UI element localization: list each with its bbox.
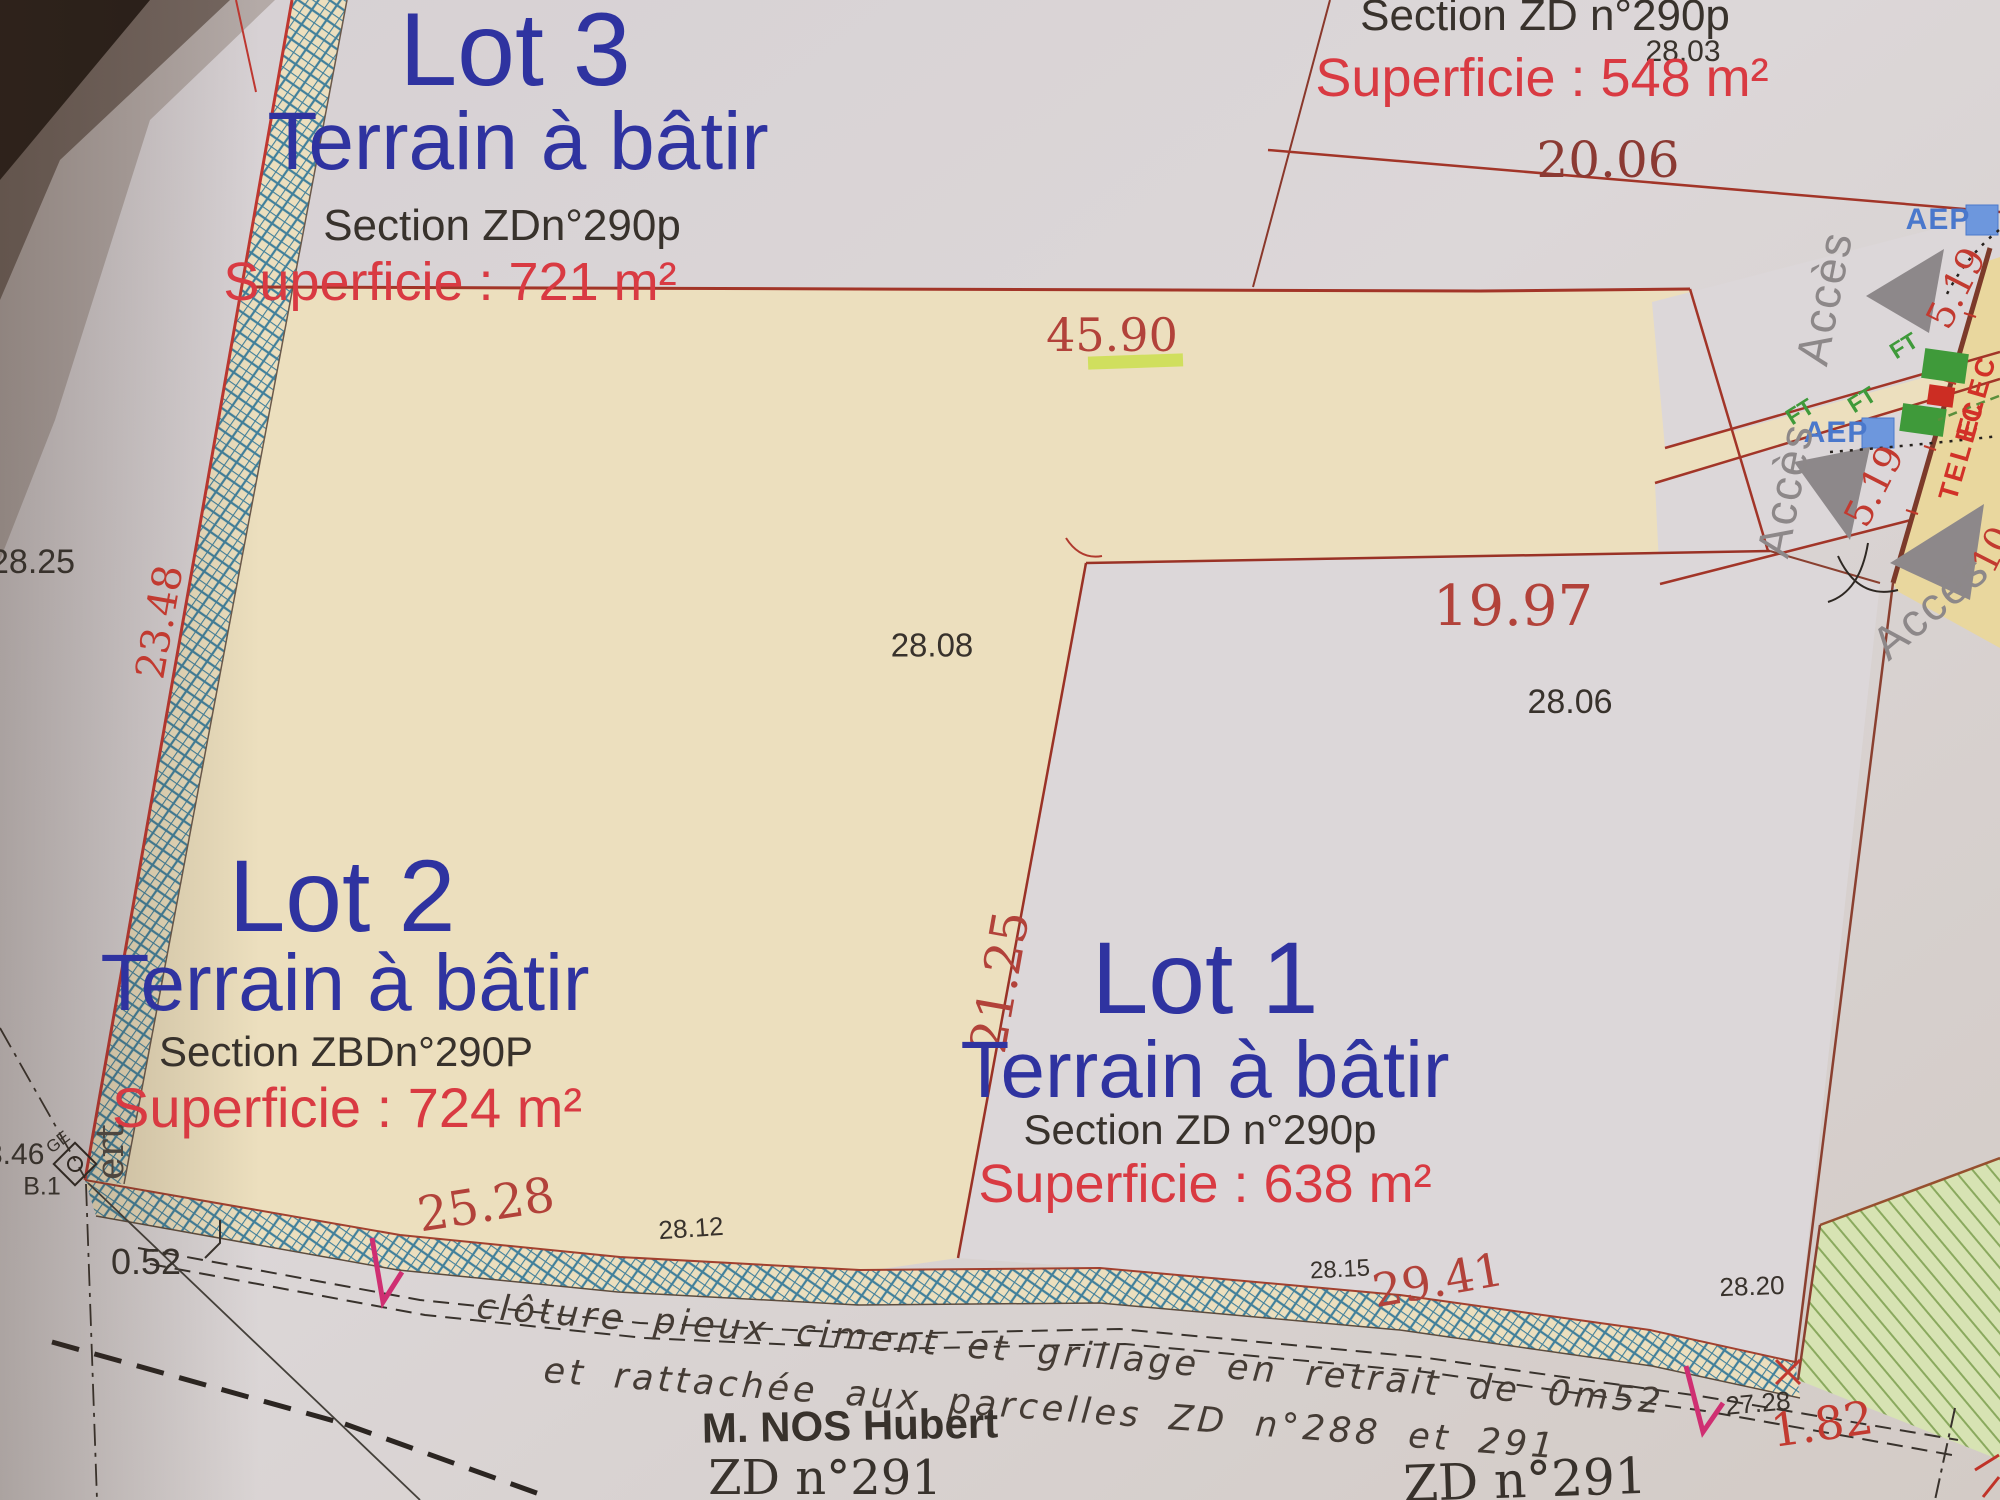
lot2-section-label: Section ZBDn°290P <box>159 1031 533 1073</box>
lot1-section-label: Section ZD n°290p <box>1023 1109 1376 1151</box>
lot3-section-label: Section ZDn°290p <box>323 204 681 248</box>
lot1-superficie-label: Superficie : 638 m² <box>978 1157 1431 1211</box>
edge-cut-text: ert <box>91 1124 129 1180</box>
dim-1-82: 1.82 <box>1768 1394 1876 1454</box>
lot1-title: Lot 1 <box>1092 927 1319 1029</box>
dim-19-97: 19.97 <box>1433 579 1593 635</box>
label-borne-b1: B.1 <box>23 1175 61 1200</box>
lot3-superficie-label: Superficie : 721 m² <box>223 255 676 309</box>
aep-label-1: AEP <box>1906 205 1971 235</box>
remainder-superficie-label: Superficie : 548 m² <box>1315 51 1768 105</box>
owner-name: M. NOS Hubert <box>701 1402 998 1449</box>
lot1-terrain-label: Terrain à bâtir <box>960 1030 1449 1110</box>
dim-3-46: 3.46 <box>0 1140 44 1170</box>
remainder-section-label: Section ZD n°290p <box>1360 0 1730 38</box>
dim-20-06: 20.06 <box>1536 135 1679 185</box>
lot2-terrain-label: Terrain à bâtir <box>100 943 589 1023</box>
photo-left-shade <box>0 0 2000 1500</box>
cadastral-plan-photo: Lot 3 Terrain à bâtir Section ZDn°290p S… <box>0 0 2000 1500</box>
dim-0-52: 0.52 <box>111 1244 181 1280</box>
dim-28-08: 28.08 <box>891 629 974 662</box>
lot3-title: Lot 3 <box>399 0 630 102</box>
parcel-zd291-bottom: ZD n°291 <box>708 1454 942 1500</box>
dim-28-12: 28.12 <box>658 1213 725 1243</box>
dim-45-90: 45.90 <box>1046 312 1178 358</box>
dim-28-20: 28.20 <box>1719 1272 1785 1300</box>
plan-drawing <box>0 0 2000 1500</box>
dim-28-15: 28.15 <box>1309 1256 1370 1283</box>
dim-28-25: 28.25 <box>0 545 75 579</box>
lot3-terrain-label: Terrain à bâtir <box>267 101 768 183</box>
lot2-superficie-label: Superficie : 724 m² <box>112 1080 582 1136</box>
dim-28-06: 28.06 <box>1527 685 1612 719</box>
parcel-zd291-right: ZD n°291 <box>1403 1451 1648 1500</box>
lot2-title: Lot 2 <box>229 845 456 947</box>
